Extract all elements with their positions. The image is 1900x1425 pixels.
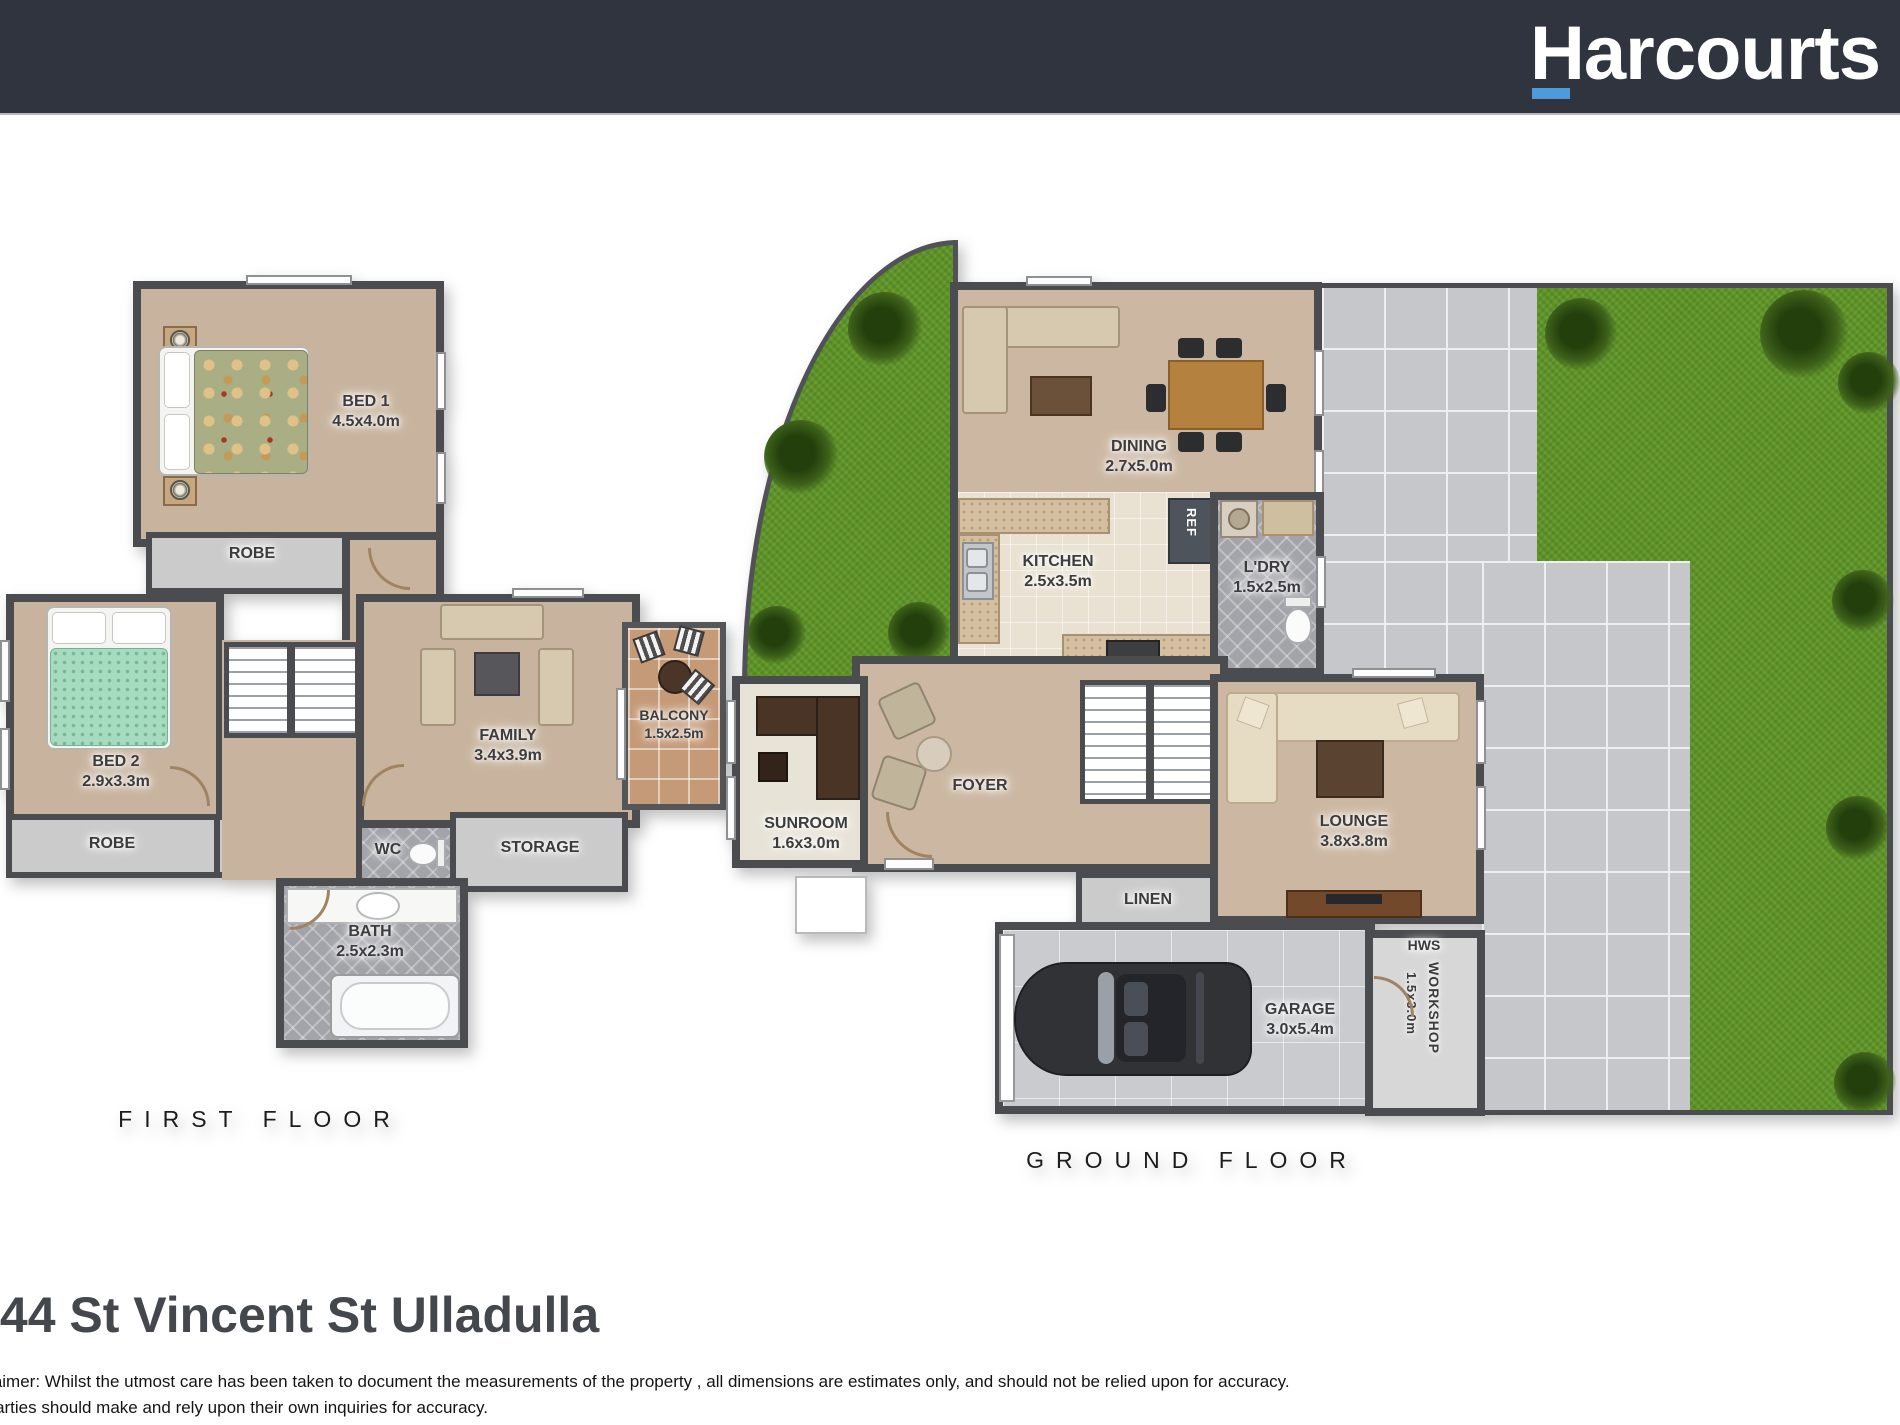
room-label-text: LINEN	[1124, 891, 1172, 908]
kitchen-bench-icon	[958, 498, 1110, 534]
bush-icon	[848, 292, 922, 366]
window-icon	[1026, 276, 1092, 286]
room-label-lounge: LOUNGE 3.8x3.8m	[1320, 812, 1388, 852]
room-dims-text: 1.6x3.0m	[772, 835, 840, 852]
chair-icon	[1178, 338, 1204, 358]
garage-door-icon	[999, 934, 1015, 1102]
room-label-kitchen: KITCHEN 2.5x3.5m	[1022, 552, 1093, 592]
door-opening	[1314, 350, 1324, 416]
room-label-text: L'DRY	[1244, 559, 1291, 576]
ground-floor-title: GROUND FLOOR	[1026, 1147, 1358, 1174]
chair-icon	[1216, 432, 1242, 452]
chair-icon	[1216, 338, 1242, 358]
stair-rail	[1146, 680, 1154, 804]
ground-floor-plan: DINING 2.7x5.0m KITCHEN 2.5x3.5m REF L'D…	[0, 0, 1900, 1425]
toilet-icon	[1284, 608, 1312, 644]
chair-icon	[1178, 432, 1204, 452]
chair-icon	[1266, 384, 1286, 412]
sofa-icon	[962, 306, 1008, 414]
room-dims-text: 2.5x3.5m	[1024, 573, 1092, 590]
property-address: /44 St Vincent St Ulladulla	[0, 1286, 599, 1344]
paved-courtyard	[1482, 561, 1690, 1113]
room-label-workshop: WORKSHOP	[1426, 962, 1442, 1054]
disclaimer-line1: Disclaimer: Whilst the utmost care has b…	[0, 1372, 1290, 1392]
chair-icon	[1146, 384, 1166, 412]
boundary-wall	[1887, 283, 1893, 1115]
room-label-text: LOUNGE	[1320, 813, 1388, 830]
bush-icon	[1834, 1052, 1896, 1114]
room-label-linen: LINEN	[1124, 890, 1172, 910]
car-rear-deck-icon	[1196, 972, 1204, 1064]
sink-bowl-icon	[966, 572, 988, 592]
room-workshop	[1365, 930, 1485, 1116]
window-icon	[726, 776, 736, 840]
paved-courtyard	[1322, 561, 1482, 682]
room-label-text: FOYER	[952, 777, 1007, 794]
side-table-icon	[758, 752, 788, 782]
bush-icon	[764, 420, 838, 494]
room-label-garage: GARAGE 3.0x5.4m	[1265, 1000, 1335, 1040]
side-table-icon	[916, 736, 952, 772]
car-windshield-icon	[1098, 972, 1114, 1064]
disclaimer-line2: All parties should make and rely upon th…	[0, 1398, 488, 1418]
bush-icon	[748, 606, 806, 664]
bush-icon	[888, 602, 950, 664]
tv-icon	[1326, 894, 1382, 904]
room-label-text: SUNROOM	[764, 815, 848, 832]
laundry-tub-icon	[1262, 500, 1314, 536]
room-label-dining: DINING 2.7x5.0m	[1105, 437, 1173, 477]
room-dims-text: 3.0x5.4m	[1266, 1021, 1334, 1038]
bush-icon	[1760, 290, 1848, 378]
window-icon	[1352, 668, 1436, 678]
fridge-icon: REF	[1168, 498, 1214, 564]
paved-courtyard	[1322, 286, 1537, 563]
bush-icon	[1545, 298, 1617, 370]
bush-icon	[1832, 570, 1894, 632]
room-dims-text: 2.7x5.0m	[1105, 458, 1173, 475]
car-seat-icon	[1124, 1022, 1148, 1056]
room-label-hws: HWS	[1408, 936, 1441, 954]
room-dims-text: 1.5x2.5m	[1233, 579, 1301, 596]
boundary-wall	[1482, 1110, 1891, 1115]
room-label-text: DINING	[1111, 438, 1167, 455]
room-label-ref: REF	[1184, 508, 1199, 537]
room-label-text: GARAGE	[1265, 1001, 1335, 1018]
front-door-opening	[884, 858, 934, 870]
porch-slab	[795, 876, 867, 934]
sink-bowl-icon	[966, 548, 988, 568]
room-label-text: KITCHEN	[1022, 553, 1093, 570]
room-label-foyer: FOYER	[952, 776, 1007, 796]
window-icon	[726, 700, 736, 764]
room-label-ldry: L'DRY 1.5x2.5m	[1233, 558, 1301, 598]
room-label-text: HWS	[1408, 937, 1441, 953]
boundary-wall	[1322, 283, 1891, 288]
window-icon	[1476, 700, 1486, 764]
window-icon	[1476, 786, 1486, 850]
washer-drum-icon	[1228, 508, 1250, 530]
bush-icon	[1826, 796, 1890, 860]
sofa-icon	[816, 696, 860, 800]
coffee-table-icon	[1030, 376, 1092, 416]
dining-table-icon	[1168, 360, 1264, 430]
room-dims-text: 3.8x3.8m	[1320, 833, 1388, 850]
car-seat-icon	[1124, 982, 1148, 1016]
floorplan-page: Harcourts BED 1 4.5x4.0m ROBE	[0, 0, 1900, 1425]
bush-icon	[1838, 352, 1900, 414]
door-opening	[1316, 556, 1326, 608]
coffee-table-icon	[1316, 740, 1384, 798]
room-label-sunroom: SUNROOM 1.6x3.0m	[764, 814, 848, 854]
